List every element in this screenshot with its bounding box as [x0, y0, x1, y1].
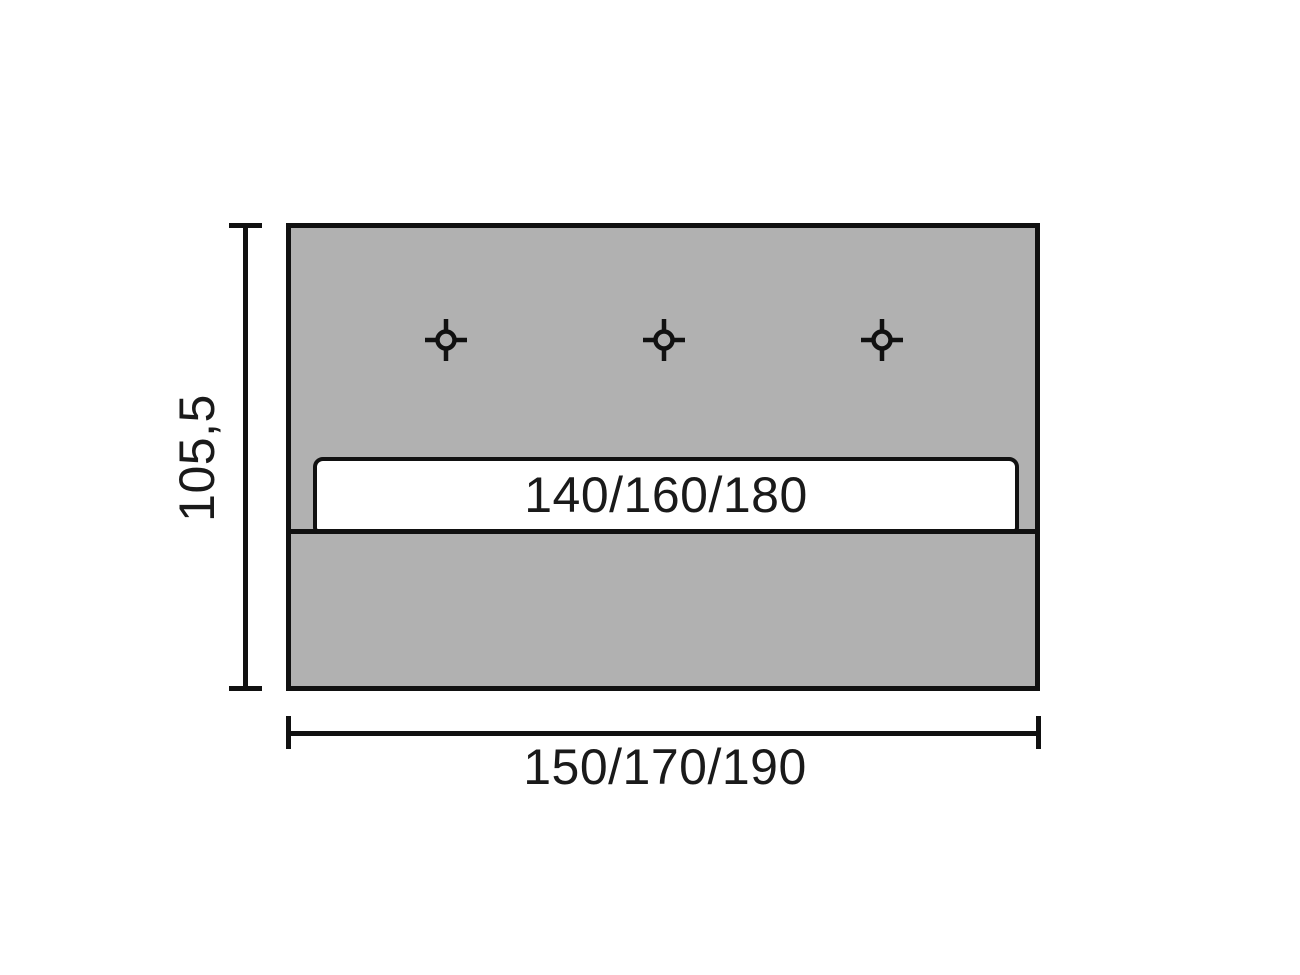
crosshair-marker-icon	[423, 317, 469, 363]
insert-bar: 140/160/180	[313, 457, 1019, 533]
height-dimension-line	[243, 223, 248, 691]
crosshair-marker-icon	[641, 317, 687, 363]
drawing-canvas: 140/160/180 105,5 150/170/190	[0, 0, 1300, 975]
width-dimension-tick-right	[1036, 716, 1041, 749]
insert-bar-size-label: 140/160/180	[524, 470, 808, 520]
width-dimension-tick-left	[286, 716, 291, 749]
height-dimension-tick-bottom	[229, 686, 262, 691]
width-dimension-line	[286, 731, 1041, 736]
crosshair-marker-icon	[859, 317, 905, 363]
height-dimension-tick-top	[229, 223, 262, 228]
width-dimension-label: 150/170/190	[523, 742, 807, 792]
height-dimension-label: 105,5	[172, 394, 222, 522]
